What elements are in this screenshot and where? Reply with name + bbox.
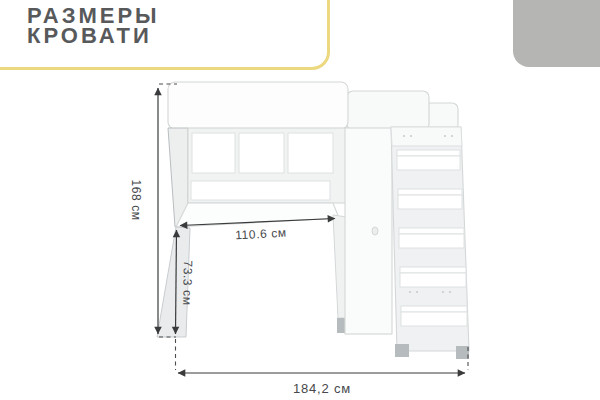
desk-nook-opening — [191, 181, 330, 200]
ladder-foot-right — [456, 346, 469, 359]
shelf-window-3 — [288, 133, 333, 173]
bed-dimension-diagram: 168 см 73.3 см 110.6 см 184,2 см — [0, 0, 600, 400]
dimension-width-label: 184,2 см — [293, 381, 351, 396]
dimension-height-label: 168 см — [129, 179, 143, 220]
head-panel-mid — [347, 91, 429, 130]
dimension-desk-width-label: 110.6 см — [235, 226, 287, 243]
desk-top — [176, 203, 339, 227]
bed-top-panel — [168, 82, 348, 129]
ladder-foot-left — [395, 344, 409, 357]
ladder-shelf-unit — [391, 127, 469, 359]
shelf-window-2 — [239, 133, 284, 173]
dimension-desk-height-label: 73.3 см — [180, 260, 195, 305]
shelf-window-1 — [192, 133, 235, 173]
wardrobe-cabinet — [345, 128, 392, 334]
cabinet-handle — [372, 227, 378, 235]
infographic: РАЗМЕРЫ КРОВАТИ — [0, 0, 600, 400]
bed-illustration — [157, 82, 469, 359]
